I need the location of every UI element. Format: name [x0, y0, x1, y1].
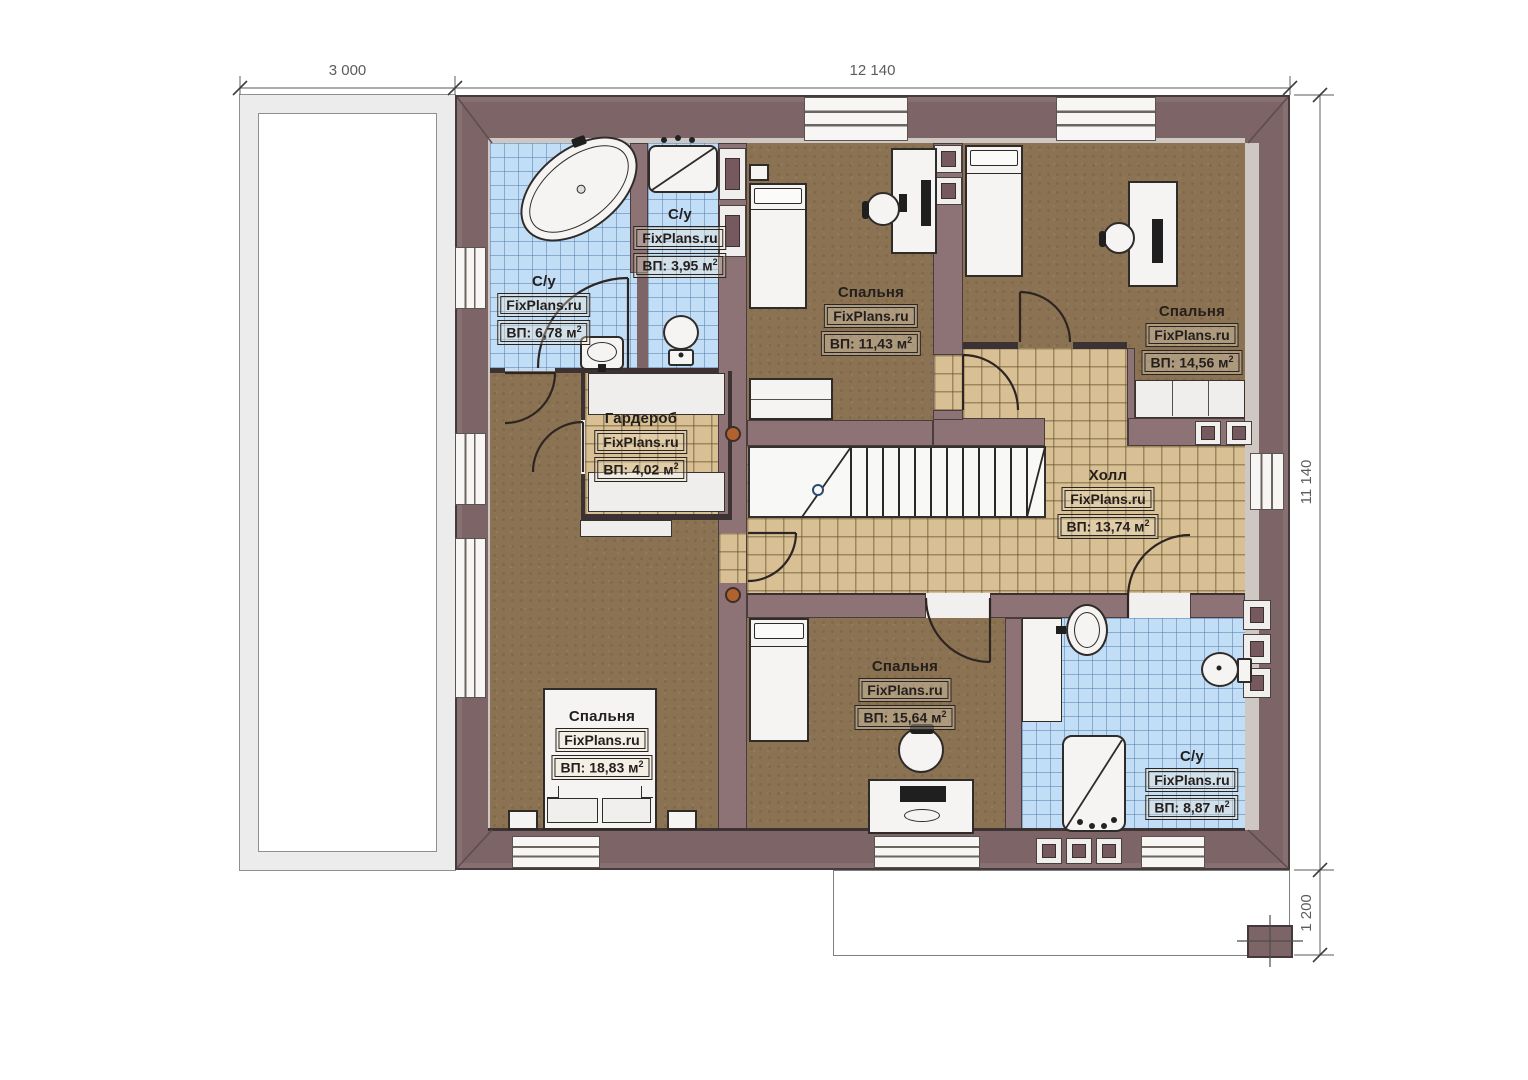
wall	[728, 371, 732, 514]
wall	[1190, 593, 1245, 618]
window	[455, 247, 486, 309]
room-area: ВП: 4,02 м2	[594, 457, 687, 482]
window	[455, 433, 486, 505]
window	[874, 836, 980, 868]
office-chair	[1103, 222, 1135, 254]
room-label-bath-top-mid: С/у FixPlans.ru ВП: 3,95 м2	[633, 206, 726, 278]
watermark: FixPlans.ru	[1145, 323, 1238, 347]
watermark: FixPlans.ru	[594, 430, 687, 454]
watermark: FixPlans.ru	[858, 678, 951, 702]
room-area: ВП: 6,78 м2	[497, 320, 590, 345]
room-area: ВП: 18,83 м2	[551, 755, 652, 780]
dresser	[580, 520, 672, 537]
office-chair	[866, 192, 900, 226]
room-name: Спальня	[854, 658, 955, 675]
nightstand	[667, 810, 697, 830]
window	[1141, 836, 1205, 868]
watermark: FixPlans.ru	[633, 226, 726, 250]
room-area: ВП: 13,74 м2	[1057, 514, 1158, 539]
wall	[747, 593, 926, 618]
room-label-bedroom-top-mid: Спальня FixPlans.ru ВП: 11,43 м2	[821, 284, 921, 356]
watermark: FixPlans.ru	[497, 293, 590, 317]
dimension-top-left: 3 000	[240, 62, 455, 79]
room-area: ВП: 11,43 м2	[821, 331, 921, 356]
stairs	[748, 446, 1046, 518]
doorway	[719, 533, 746, 583]
bed	[749, 183, 807, 309]
basin-tap-icon	[1056, 626, 1066, 634]
desk	[1128, 181, 1178, 287]
room-name: Гардероб	[594, 410, 687, 427]
room-area: ВП: 3,95 м2	[633, 253, 726, 278]
niche	[1226, 421, 1252, 445]
dimension-bottom-right: 1 200	[1276, 888, 1336, 938]
niche	[1066, 838, 1092, 864]
wall	[747, 420, 933, 446]
niche	[1243, 600, 1271, 630]
wall	[933, 418, 1045, 446]
window	[1056, 97, 1156, 141]
room-label-bedroom-bottom-left: Спальня FixPlans.ru ВП: 18,83 м2	[551, 708, 652, 780]
closet	[1135, 380, 1245, 418]
basin-tap-icon	[598, 364, 606, 372]
doorway	[581, 420, 585, 474]
doorway	[926, 593, 990, 618]
watermark: FixPlans.ru	[1145, 768, 1238, 792]
room-label-wardrobe: Гардероб FixPlans.ru ВП: 4,02 м2	[594, 410, 687, 482]
watermark: FixPlans.ru	[824, 304, 917, 328]
toilet-tank	[1237, 658, 1252, 683]
niche	[934, 177, 962, 205]
dresser	[749, 378, 833, 420]
room-label-bath-bottom-right: С/у FixPlans.ru ВП: 8,87 м2	[1145, 748, 1238, 820]
niche	[1096, 838, 1122, 864]
toilet-tank	[668, 349, 694, 366]
room-area: ВП: 15,64 м2	[854, 705, 955, 730]
doorway	[934, 355, 962, 410]
wall	[490, 368, 505, 373]
nightstand	[749, 164, 769, 181]
washbasin	[1066, 604, 1108, 656]
lower-roof-outline	[833, 870, 1290, 956]
niche	[1036, 838, 1062, 864]
window	[455, 538, 486, 698]
wall	[933, 143, 963, 355]
floor-plan: С/у FixPlans.ru ВП: 6,78 м2 С/у FixPlans…	[0, 0, 1528, 1080]
wall	[990, 593, 1128, 618]
room-name: Холл	[1057, 467, 1158, 484]
room-label-bath-top-left: С/у FixPlans.ru ВП: 6,78 м2	[497, 273, 590, 345]
wall	[933, 410, 963, 420]
watermark: FixPlans.ru	[555, 728, 648, 752]
room-name: С/у	[1145, 748, 1238, 765]
niche	[719, 148, 746, 200]
niche	[934, 145, 962, 173]
toilet	[663, 315, 699, 350]
doorway	[1128, 593, 1190, 618]
room-name: Спальня	[821, 284, 921, 301]
wall	[1005, 618, 1022, 830]
shower-cabin	[1062, 735, 1126, 832]
dimension-top-main: 12 140	[455, 62, 1290, 79]
wall	[963, 342, 1018, 349]
room-name: Спальня	[1141, 303, 1242, 320]
corridor-neck-floor	[490, 371, 583, 560]
room-name: Спальня	[551, 708, 652, 725]
terrace-outline	[240, 95, 455, 870]
armchair	[898, 727, 944, 773]
room-name: С/у	[633, 206, 726, 223]
shower-tray	[648, 145, 718, 193]
bed	[965, 145, 1023, 277]
window	[512, 836, 600, 868]
room-label-bedroom-bottom-mid: Спальня FixPlans.ru ВП: 15,64 м2	[854, 658, 955, 730]
wall	[1073, 342, 1127, 349]
toilet	[1201, 652, 1239, 687]
room-label-bedroom-top-right: Спальня FixPlans.ru ВП: 14,56 м2	[1141, 303, 1242, 375]
room-label-hall: Холл FixPlans.ru ВП: 13,74 м2	[1057, 467, 1158, 539]
dimension-right: 11 140	[1276, 454, 1336, 510]
watermark: FixPlans.ru	[1061, 487, 1154, 511]
wardrobe-cabinet	[588, 373, 725, 415]
room-area: ВП: 8,87 м2	[1145, 795, 1238, 820]
room-area: ВП: 14,56 м2	[1141, 350, 1242, 375]
desk	[868, 779, 974, 834]
nightstand	[508, 810, 538, 830]
room-name: С/у	[497, 273, 590, 290]
window	[804, 97, 908, 141]
bed	[749, 618, 809, 742]
niche	[1195, 421, 1221, 445]
